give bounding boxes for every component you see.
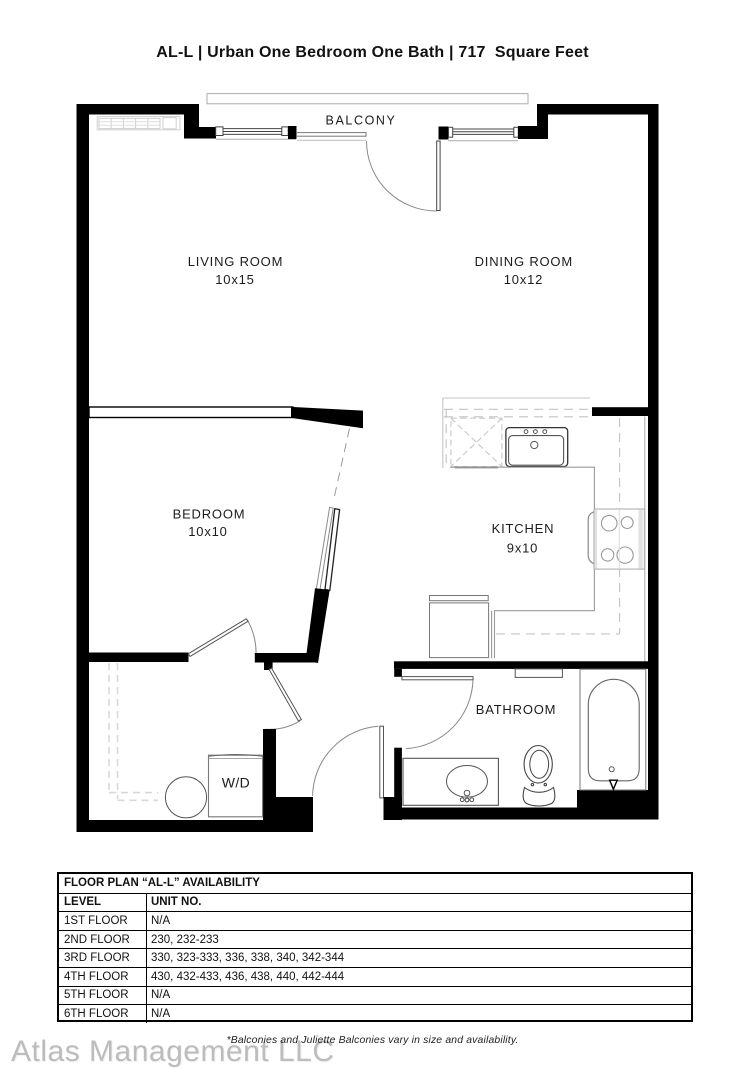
svg-text:10x15: 10x15 [215,272,254,287]
svg-text:DINING ROOM: DINING ROOM [475,254,573,269]
svg-text:10x12: 10x12 [504,272,543,287]
svg-text:BATHROOM: BATHROOM [476,702,557,717]
svg-text:LIVING ROOM: LIVING ROOM [188,254,283,269]
svg-text:9x10: 9x10 [507,541,538,556]
svg-text:KITCHEN: KITCHEN [492,521,555,536]
svg-text:BALCONY: BALCONY [326,114,397,128]
svg-text:BEDROOM: BEDROOM [173,506,246,521]
svg-text:10x10: 10x10 [188,524,227,539]
svg-text:W/D: W/D [222,775,250,791]
